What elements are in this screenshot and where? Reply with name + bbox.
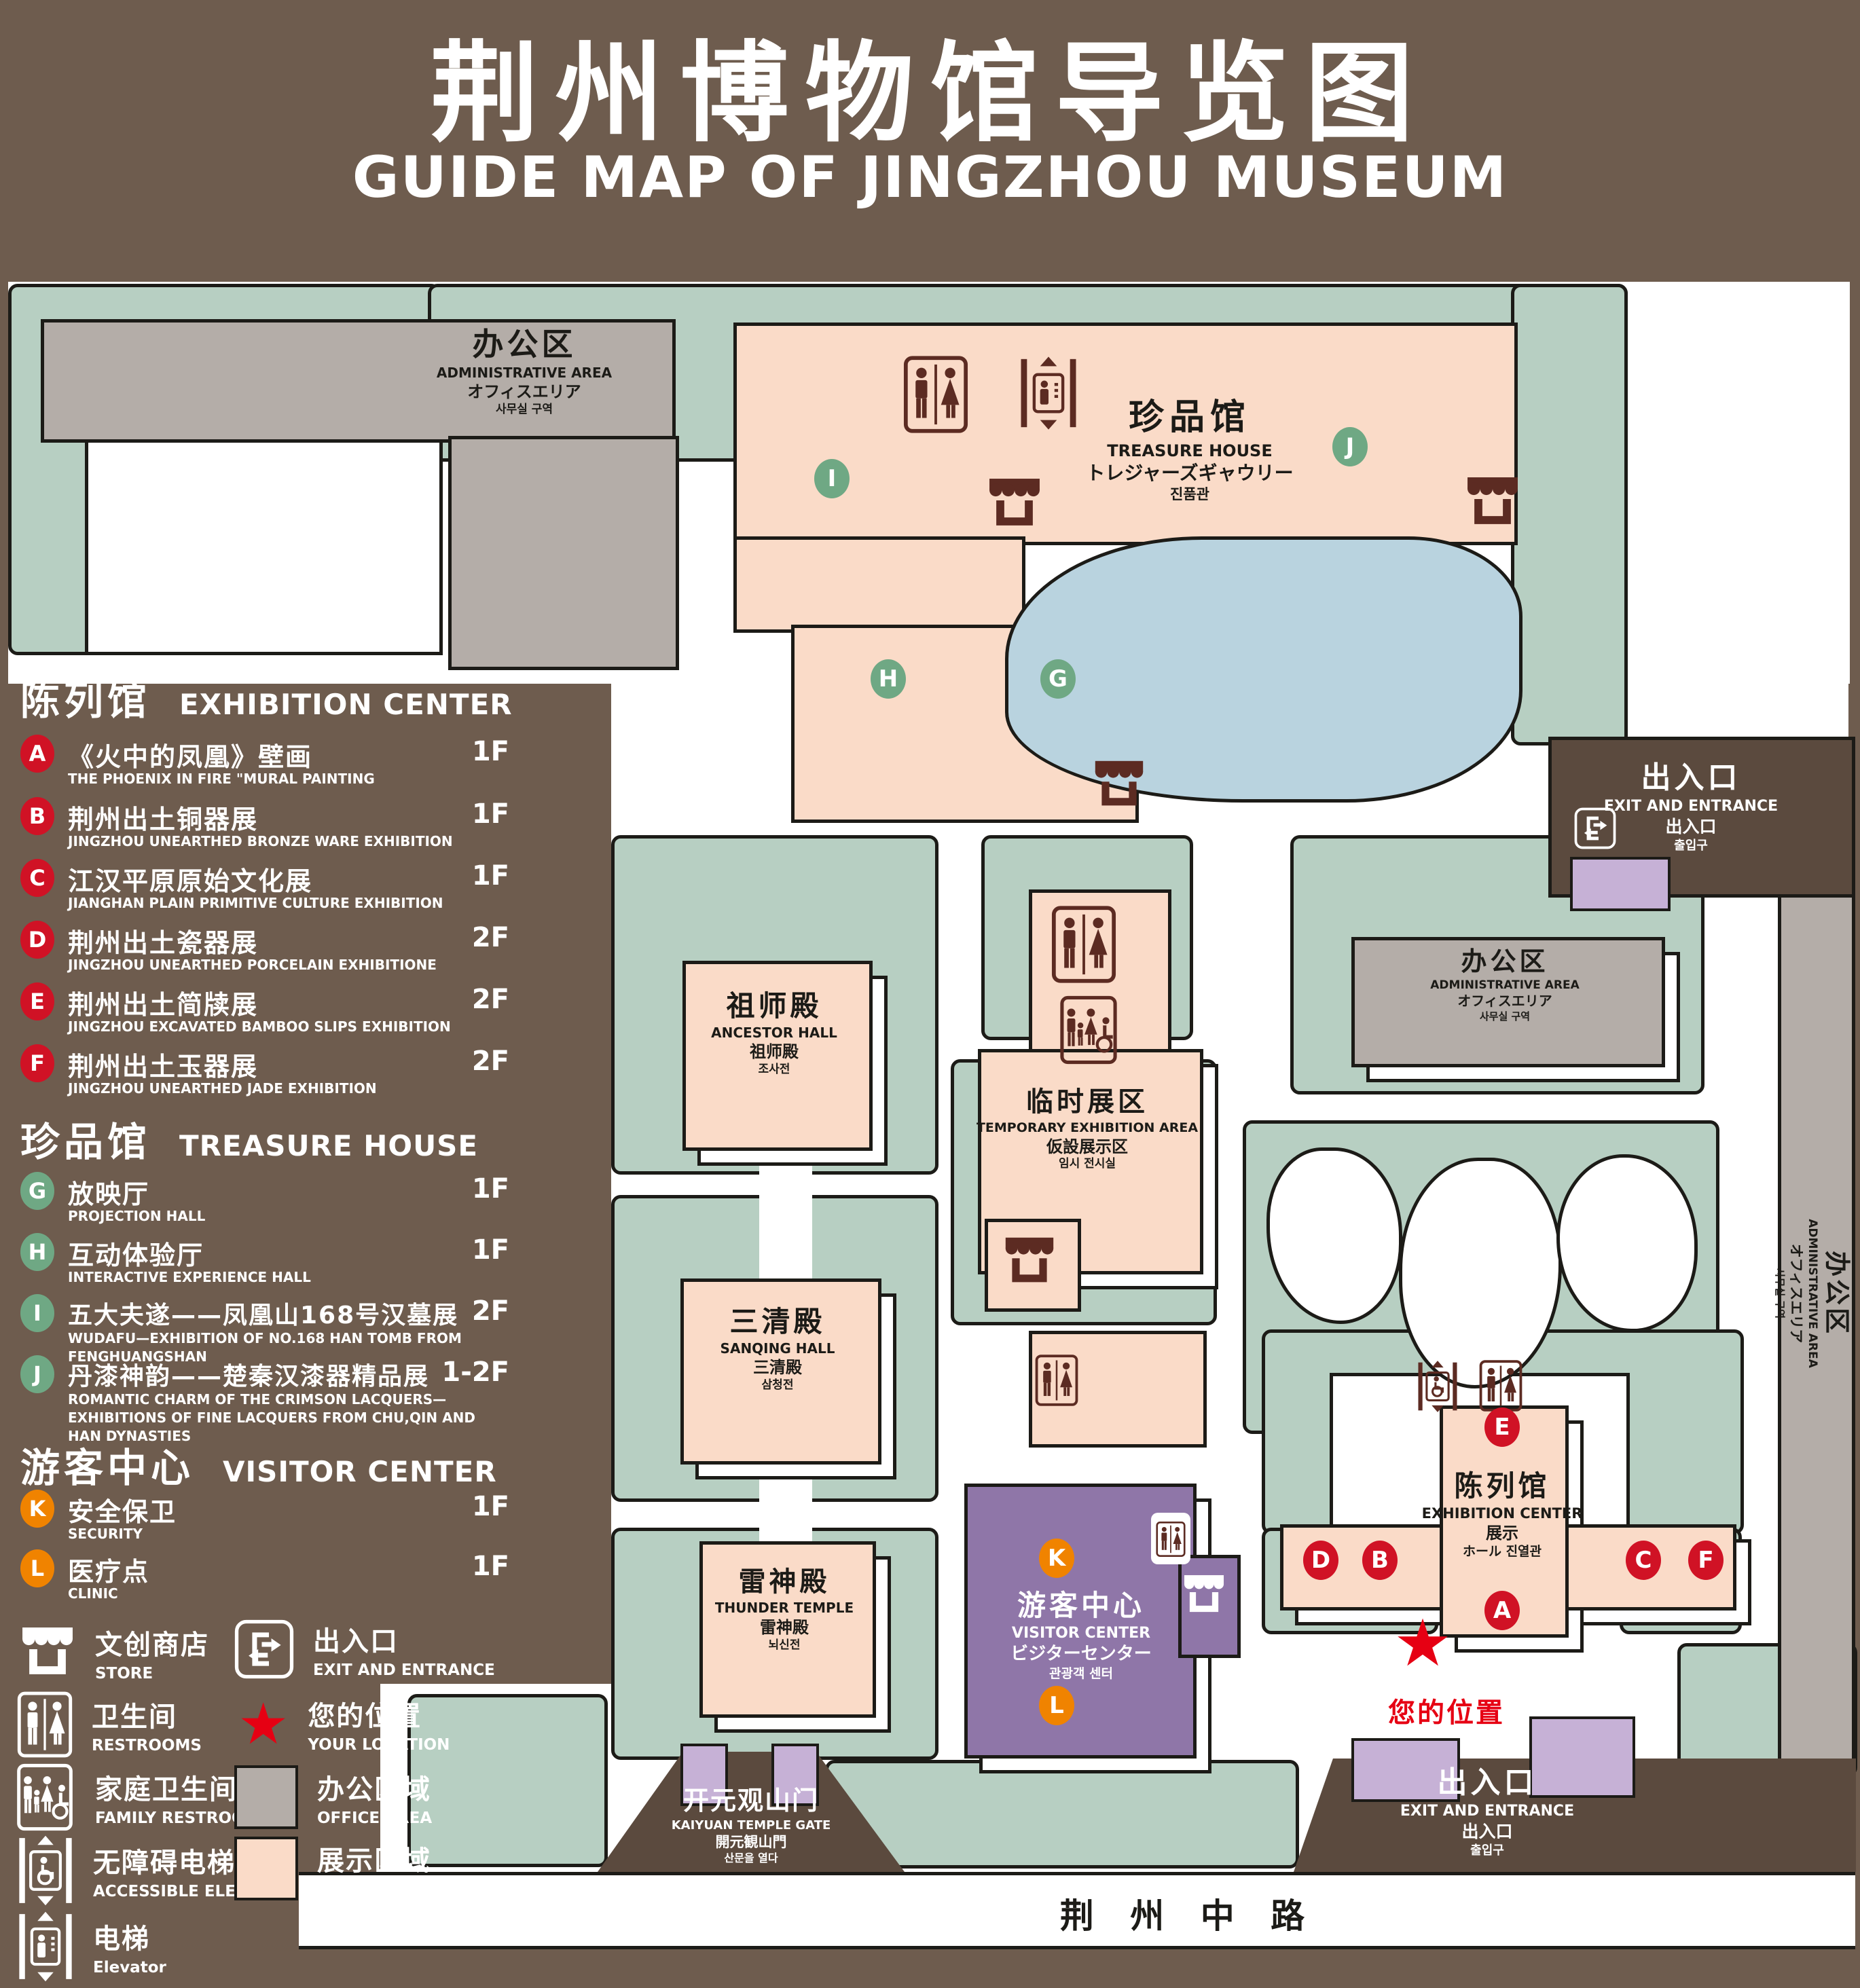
admin-en: ADMINISTRATIVE AREA — [437, 365, 612, 382]
exhibition-zh: 陈列馆 — [1422, 1468, 1583, 1505]
legend-symbol-display-area: 展示区域DISPLAY AREA — [234, 1837, 443, 1900]
gate-ja: 開元観山門 — [672, 1833, 831, 1852]
treasure-ja: トレジャーズギャウリー — [1086, 461, 1293, 485]
legend-section-exhibition-center: 陈列馆EXHIBITION CENTER — [20, 669, 513, 726]
map-marker-f: F — [1688, 1541, 1724, 1580]
section-zh: 珍品馆 — [20, 1119, 151, 1165]
elevator-icon — [1019, 352, 1078, 435]
sanqing-ja: 三清殿 — [721, 1357, 835, 1378]
legend-symbol-office-area: 办公区域OFFICE AREA — [234, 1765, 432, 1829]
restrooms-icon — [17, 1691, 73, 1759]
marker-d: D — [20, 921, 54, 959]
admin-ja: オフィスエリア — [1430, 993, 1579, 1010]
map-marker-c: C — [1626, 1541, 1661, 1580]
marker-h: H — [20, 1233, 54, 1271]
treasure-house-building — [733, 536, 1025, 633]
ancestor-ko: 조사전 — [711, 1063, 837, 1078]
restrooms-icon — [1051, 904, 1116, 984]
exit-zh: 出入口 — [1400, 1764, 1574, 1802]
admin-ko: 사무실 구역 — [1430, 1010, 1579, 1023]
exhibition-en: EXHIBITION CENTER — [1422, 1505, 1583, 1523]
legend-item-f: F 荆州出土玉器展 2F JINGZHOU UNEARTHED JADE EXH… — [20, 1048, 509, 1107]
legend-item-i: I 五大夫遂——凤凰山168号汉墓展 2F WUDAFU—EXHIBITION … — [20, 1298, 509, 1357]
store-icon — [986, 475, 1043, 532]
restrooms-icon — [903, 354, 968, 435]
section-zh: 陈列馆 — [20, 678, 151, 724]
office-area-swatch — [234, 1765, 298, 1829]
road-label: 荆 州 中 路 — [985, 1889, 1392, 1938]
exhibition-ko: ホール 진열관 — [1422, 1543, 1583, 1560]
guide-map-poster: 荆州博物馆导览图 GUIDE MAP OF JINGZHOU MUSEUM — [0, 0, 1860, 1988]
marker-a: A — [20, 735, 54, 773]
exhibition-center-label: 陈列馆 EXHIBITION CENTER 展示 ホール 진열관 — [1422, 1468, 1583, 1560]
store-icon — [1092, 758, 1146, 812]
marker-j: J — [20, 1355, 54, 1393]
legend-symbol-family-restrooms: 家庭卫生间FAMILY RESTROOMS — [14, 1763, 272, 1831]
exit-bottom-label: 出入口 EXIT AND ENTRANCE 出入口 출입구 — [1400, 1764, 1574, 1859]
admin-zh: 办公区 — [1430, 945, 1579, 978]
lake — [1005, 536, 1522, 803]
marker-i: I — [20, 1294, 54, 1332]
courtyard — [85, 435, 443, 655]
map-marker-h: H — [871, 659, 906, 699]
exit-zh: 出入口 — [1604, 759, 1778, 797]
exit-en: EXIT AND ENTRANCE — [1400, 1802, 1574, 1821]
store-icon — [1182, 1572, 1226, 1617]
map-marker-g: G — [1040, 659, 1076, 699]
exit-icon — [234, 1619, 294, 1679]
thunder-ko: 뇌신전 — [715, 1638, 854, 1653]
gate-en: KAIYUAN TEMPLE GATE — [672, 1818, 831, 1833]
exhibition-ja: 展示 — [1422, 1523, 1583, 1544]
map-marker-i: I — [814, 459, 850, 498]
ancestor-en: ANCESTOR HALL — [711, 1025, 837, 1042]
section-en: TREASURE HOUSE — [179, 1129, 478, 1162]
treasure-house-label: 珍品馆 TREASURE HOUSE トレジャーズギャウリー 진품관 — [1086, 395, 1293, 504]
small-building — [1570, 857, 1671, 911]
marker-e: E — [20, 982, 54, 1020]
gate-zh: 开元观山门 — [672, 1784, 831, 1818]
legend-symbol-elevator: 电梯Elevator — [17, 1909, 166, 1984]
ancestor-zh: 祖师殿 — [711, 988, 837, 1025]
legend-section-visitor-center: 游客中心VISITOR CENTER — [20, 1436, 497, 1493]
legend-item-k: K 安全保卫 1F SECURITY — [20, 1494, 509, 1552]
section-en: VISITOR CENTER — [223, 1455, 497, 1488]
restrooms-icon — [1035, 1348, 1078, 1413]
exit-ko: 출입구 — [1604, 838, 1778, 853]
legend-symbol-restrooms: 卫生间RESTROOMS — [17, 1691, 202, 1759]
map-marker-b: B — [1362, 1541, 1398, 1580]
admin-ja: オフィスエリア — [1786, 1219, 1804, 1367]
marker-k: K — [20, 1490, 54, 1528]
temporary-ja: 仮設展示区 — [977, 1137, 1198, 1158]
treasure-en: TREASURE HOUSE — [1086, 441, 1293, 462]
ancestor-hall-label: 祖师殿 ANCESTOR HALL 祖师殿 조사전 — [711, 988, 837, 1078]
display-area-swatch — [234, 1837, 298, 1900]
admin-en: ADMINISTRATIVE AREA — [1805, 1219, 1820, 1367]
restrooms-icon — [1156, 1520, 1186, 1559]
admin-building-top-wing — [448, 436, 679, 670]
thunder-ja: 雷神殿 — [715, 1617, 854, 1638]
admin-ko: 사무실 구역 — [437, 403, 612, 418]
admin-zh: 办公区 — [1820, 1219, 1853, 1367]
legend-section-treasure-house: 珍品馆TREASURE HOUSE — [20, 1110, 478, 1167]
lawn-block — [825, 1760, 1299, 1869]
page-subtitle: GUIDE MAP OF JINGZHOU MUSEUM — [0, 144, 1860, 210]
legend-item-g: G 放映厅 1F PROJECTION HALL — [20, 1176, 509, 1234]
map-marker-k: K — [1039, 1539, 1074, 1578]
visitor-center-label: 游客中心 VISITOR CENTER ビジターセンター 관광객 센터 — [1010, 1587, 1151, 1682]
accessible-elevator-icon — [1417, 1355, 1459, 1418]
legend-item-d: D 荆州出土瓷器展 2F JINGZHOU UNEARTHED PORCELAI… — [20, 925, 509, 983]
legend-item-j: J 丹漆神韵——楚秦汉漆器精品展 1-2F ROMANTIC CHARM OF … — [20, 1359, 509, 1418]
treasure-ko: 진품관 — [1086, 485, 1293, 504]
legend-item-b: B 荆州出土铜器展 1F JINGZHOU UNEARTHED BRONZE W… — [20, 801, 509, 860]
visitor-zh: 游客中心 — [1010, 1587, 1151, 1624]
ancestor-ja: 祖师殿 — [711, 1042, 837, 1063]
kaiyuan-gate-label: 开元观山门 KAIYUAN TEMPLE GATE 開元観山門 산문을 열다 — [672, 1784, 831, 1865]
exit-icon — [1574, 807, 1616, 850]
visitor-en: VISITOR CENTER — [1010, 1624, 1151, 1643]
exit-ko: 출입구 — [1400, 1843, 1574, 1858]
section-zh: 游客中心 — [20, 1445, 194, 1491]
your-location-label: 您的位置 — [1348, 1691, 1545, 1730]
exit-ja: 出入口 — [1400, 1821, 1574, 1843]
temporary-en: TEMPORARY EXHIBITION AREA — [977, 1120, 1198, 1136]
temporary-ko: 임시 전시실 — [977, 1157, 1198, 1172]
legend-item-e: E 荆州出土简牍展 2F JINGZHOU EXCAVATED BAMBOO S… — [20, 987, 509, 1045]
admin-ko: 사무실 구역 — [1773, 1219, 1787, 1367]
family-restrooms-icon — [14, 1763, 76, 1831]
admin-zh: 办公区 — [437, 325, 612, 365]
legend-symbol-store: 文创商店STORE — [19, 1623, 209, 1682]
section-en: EXHIBITION CENTER — [179, 688, 513, 721]
store-icon — [19, 1624, 76, 1681]
map-marker-a: A — [1484, 1591, 1520, 1630]
your-location-star-icon: ★ — [238, 1695, 289, 1752]
sanqing-en: SANQING HALL — [721, 1340, 835, 1358]
legend-symbol-your-location: ★ 您的位置YOUR LOCATION — [238, 1694, 450, 1754]
exit-en: EXIT AND ENTRANCE — [1604, 797, 1778, 816]
marker-b: B — [20, 797, 54, 835]
map-marker-j: J — [1332, 427, 1368, 466]
visitor-ko: 관광객 센터 — [1010, 1665, 1151, 1682]
exit-top-label: 出入口 EXIT AND ENTRANCE 出入口 출입구 — [1604, 759, 1778, 854]
marker-l: L — [20, 1549, 54, 1587]
admin-top-label: 办公区 ADMINISTRATIVE AREA オフィスエリア 사무실 구역 — [437, 325, 612, 418]
admin-en: ADMINISTRATIVE AREA — [1430, 978, 1579, 993]
admin-strip-label: 办公区 ADMINISTRATIVE AREA オフィスエリア 사무실 구역 — [1773, 1219, 1853, 1367]
thunder-zh: 雷神殿 — [715, 1565, 854, 1600]
marker-f: F — [20, 1044, 54, 1082]
legend-item-l: L 医疗点 1F CLINIC — [20, 1553, 509, 1612]
lawn-block — [1511, 284, 1628, 745]
admin-ja: オフィスエリア — [437, 382, 612, 403]
map-marker-l: L — [1039, 1686, 1074, 1725]
elevator-icon — [17, 1909, 74, 1984]
visitor-ja: ビジターセンター — [1010, 1643, 1151, 1665]
sanqing-zh: 三清殿 — [721, 1304, 835, 1340]
store-icon — [1002, 1234, 1057, 1289]
admin-right-label: 办公区 ADMINISTRATIVE AREA オフィスエリア 사무실 구역 — [1430, 945, 1579, 1023]
page-title: 荆州博物馆导览图 — [0, 5, 1860, 163]
legend-symbol-exit: 出入口EXIT AND ENTRANCE — [234, 1619, 495, 1679]
store-icon — [1464, 474, 1521, 531]
sanqing-hall-label: 三清殿 SANQING HALL 三清殿 삼청전 — [721, 1304, 835, 1393]
exit-ja: 出入口 — [1604, 816, 1778, 838]
your-location-star-icon: ★ — [1393, 1610, 1452, 1676]
marker-c: C — [20, 859, 54, 897]
temporary-area-label: 临时展区 TEMPORARY EXHIBITION AREA 仮設展示区 임시 … — [977, 1085, 1198, 1172]
accessible-elevator-icon — [17, 1833, 74, 1908]
gate-ko: 산문을 열다 — [672, 1852, 831, 1865]
marker-g: G — [20, 1172, 54, 1210]
legend-item-c: C 江汉平原原始文化展 1F JIANGHAN PLAIN PRIMITIVE … — [20, 863, 509, 921]
family-restrooms-icon — [1057, 995, 1120, 1065]
thunder-en: THUNDER TEMPLE — [715, 1600, 854, 1617]
map-marker-e: E — [1484, 1407, 1520, 1447]
treasure-zh: 珍品馆 — [1086, 395, 1293, 441]
legend-item-a: A 《火中的凤凰》壁画 1F THE PHOENIX IN FIRE "MURA… — [20, 739, 509, 797]
legend-item-h: H 互动体验厅 1F INTERACTIVE EXPERIENCE HALL — [20, 1237, 509, 1295]
thunder-temple-label: 雷神殿 THUNDER TEMPLE 雷神殿 뇌신전 — [715, 1565, 854, 1653]
temporary-zh: 临时展区 — [977, 1085, 1198, 1120]
sanqing-ko: 삼청전 — [721, 1378, 835, 1393]
map-marker-d: D — [1303, 1541, 1338, 1580]
